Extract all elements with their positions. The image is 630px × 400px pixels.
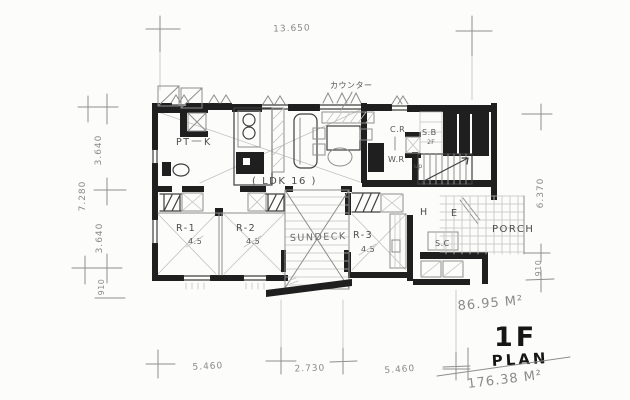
label-kitchen: K	[204, 137, 212, 148]
dim-bottom-center: 2.730	[294, 363, 325, 374]
kitchen-unit	[234, 108, 284, 185]
label-porch: PORCH	[492, 224, 534, 235]
label-shoe-closet: S.C	[435, 239, 450, 248]
label-stair-box: S.B	[422, 128, 437, 137]
floor-plan-sheet: 13.650 3.640 7.280 3.640 910 6.370 910 5…	[0, 0, 630, 400]
label-hall: H	[420, 207, 429, 218]
label-pantry: PT	[176, 137, 191, 148]
counter-note: カウンター	[330, 81, 373, 90]
dimension-labels: 13.650 3.640 7.280 3.640 910 6.370 910 5…	[78, 23, 546, 376]
dim-left-upper: 3.640	[94, 135, 104, 166]
label-sundeck: SUNDECK	[290, 231, 347, 244]
stairs: up	[414, 154, 472, 184]
label-room3: R-3	[353, 230, 373, 241]
label-room1: R-1	[176, 223, 196, 234]
label-room2: R-2	[236, 223, 256, 234]
dim-bottom-left: 5.460	[192, 361, 223, 373]
dim-left-lower: 3.640	[95, 223, 105, 254]
title-block: 86.95 M² 1F PLAN 176.38 M²	[437, 293, 570, 392]
dim-right-offset: 910	[534, 260, 543, 277]
label-ldk: ( LDK 16 )	[252, 176, 317, 187]
label-stair-box-note: 2F	[427, 138, 435, 146]
label-entrance: E	[451, 208, 459, 219]
dim-left-total: 7.280	[78, 181, 88, 212]
label-closet-room: C.R	[390, 125, 405, 134]
label-water-room: W.R	[388, 155, 405, 164]
stairs-up-label: up	[414, 162, 422, 170]
floor-area-note: 86.95 M²	[457, 293, 524, 314]
dim-top-total: 13.650	[273, 23, 311, 34]
dim-bottom-right: 5.460	[384, 364, 415, 376]
total-area-note: 176.38 M²	[467, 368, 543, 392]
dim-right-total: 6.370	[536, 178, 546, 209]
dimension-grid	[72, 16, 554, 380]
floor-plan-canvas: 13.650 3.640 7.280 3.640 910 6.370 910 5…	[0, 0, 630, 400]
floor-title: 1F	[494, 322, 537, 353]
dim-left-offset: 910	[97, 279, 106, 296]
toilet	[162, 162, 189, 176]
